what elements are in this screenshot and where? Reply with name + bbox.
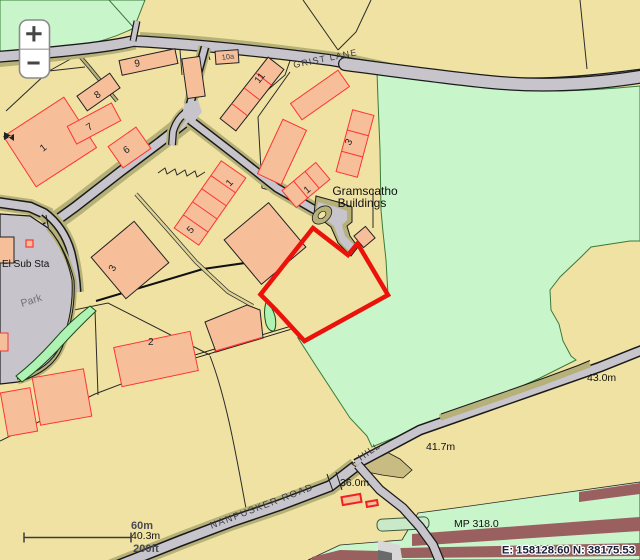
svg-text:El Sub Sta: El Sub Sta [2,259,50,270]
svg-text:E: 158128.60 N: 38175.53: E: 158128.60 N: 38175.53 [502,545,635,557]
svg-text:36.0m: 36.0m [340,477,369,489]
svg-text:Buildings: Buildings [338,196,387,210]
svg-text:43.0m: 43.0m [587,372,616,384]
svg-text:60m: 60m [131,520,153,532]
svg-text:200ft: 200ft [133,543,159,555]
svg-text:MP 318.0: MP 318.0 [454,518,499,530]
svg-text:10a: 10a [221,51,235,62]
svg-text:2: 2 [148,337,154,348]
svg-text:41.7m: 41.7m [426,441,455,453]
